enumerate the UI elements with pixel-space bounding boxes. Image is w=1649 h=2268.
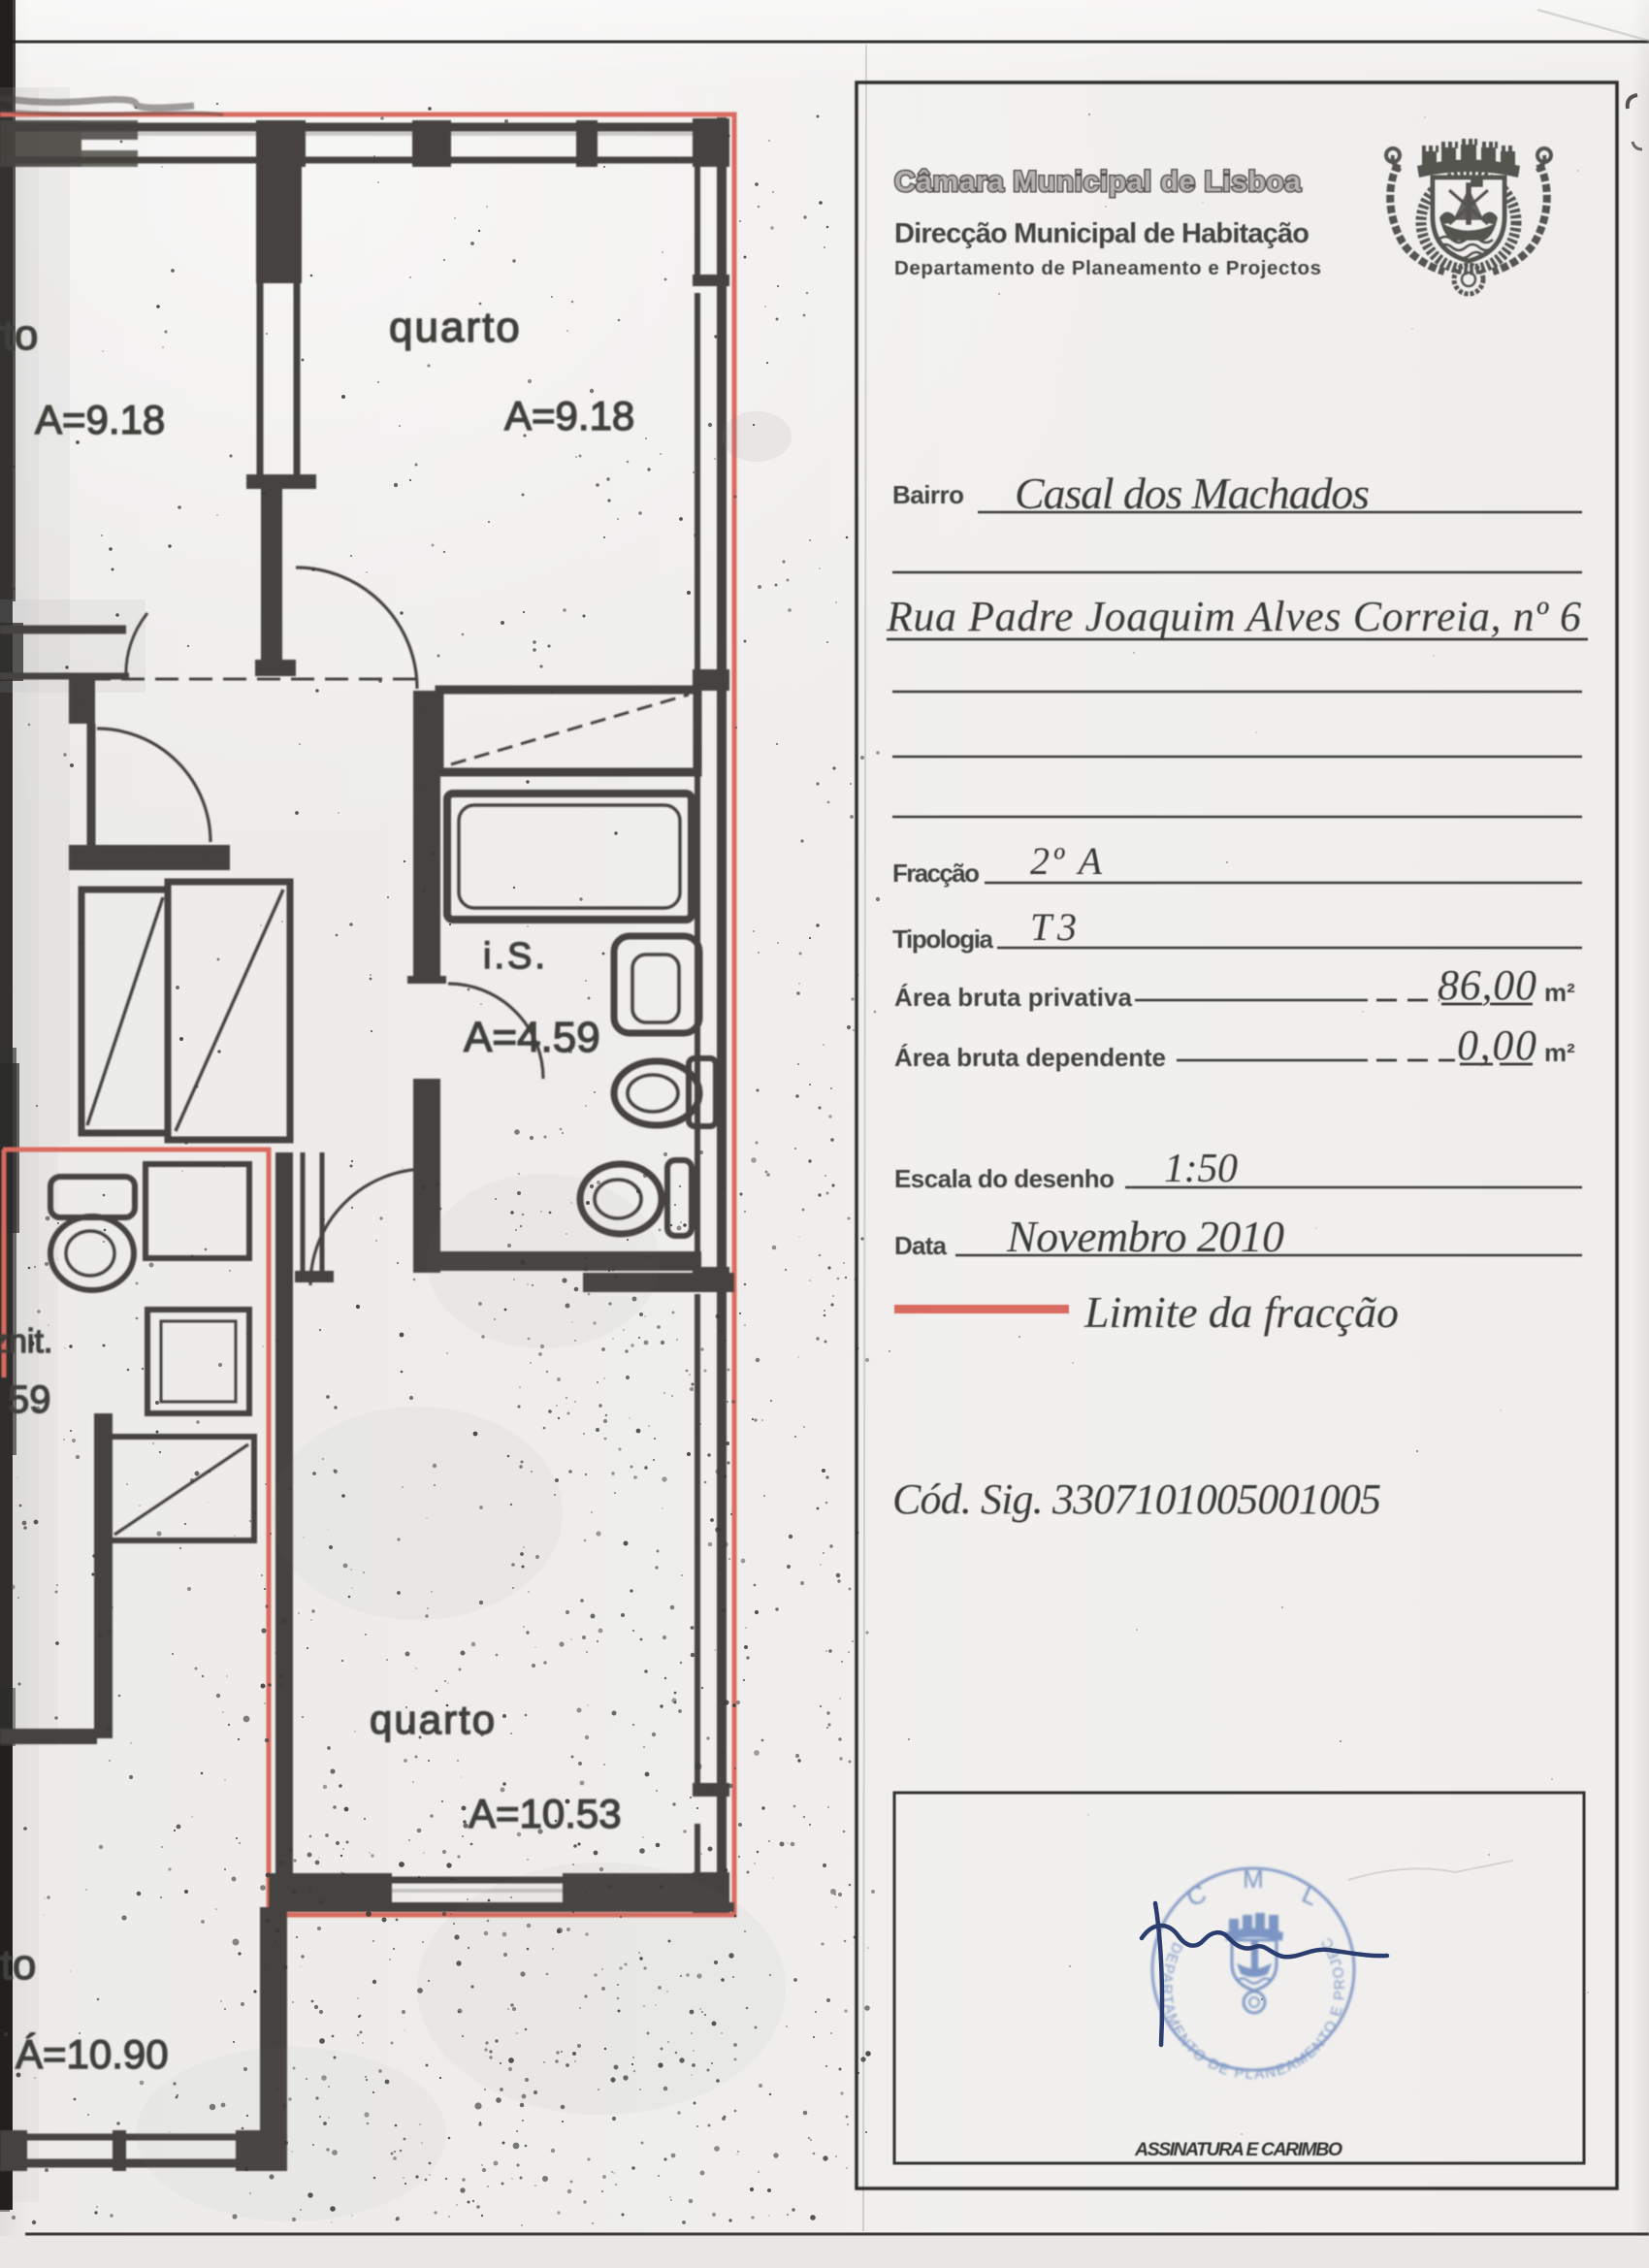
svg-text:Casal dos Machados: Casal dos Machados xyxy=(1015,469,1370,518)
svg-text:quarto: quarto xyxy=(389,304,522,351)
svg-text:m²: m² xyxy=(1544,978,1575,1007)
svg-text:Data: Data xyxy=(894,1231,948,1260)
svg-text:Direcção Municipal de Habitaçã: Direcção Municipal de Habitação xyxy=(894,218,1309,249)
svg-text:Rua Padre Joaquim Alves Correi: Rua Padre Joaquim Alves Correia, nº 6 xyxy=(886,593,1581,640)
svg-text:Câmara Municipal de Lisboa: Câmara Municipal de Lisboa xyxy=(894,166,1302,198)
svg-text:1:50: 1:50 xyxy=(1164,1147,1238,1191)
svg-text:Bairro: Bairro xyxy=(892,480,964,509)
svg-text:Departamento de Planeamento e: Departamento de Planeamento e Projectos xyxy=(894,257,1321,279)
svg-text:A=9.18: A=9.18 xyxy=(35,397,165,442)
svg-text:Área bruta dependente: Área bruta dependente xyxy=(894,1043,1166,1072)
svg-text:Fracção: Fracção xyxy=(892,859,980,888)
svg-text:Tipologia: Tipologia xyxy=(892,924,994,954)
svg-text:L: L xyxy=(1298,1879,1322,1911)
svg-text:m²: m² xyxy=(1544,1038,1575,1067)
svg-text:Escala do desenho: Escala do desenho xyxy=(894,1164,1115,1193)
svg-text:Cód. Sig. 3307101005001005: Cód. Sig. 3307101005001005 xyxy=(892,1475,1381,1523)
svg-text:M: M xyxy=(1243,1864,1264,1894)
svg-text:Á=10.90: Á=10.90 xyxy=(16,2031,169,2077)
svg-text:59: 59 xyxy=(8,1378,51,1421)
svg-text:DEPARTAMENTO DE PLANEAMENTO E: DEPARTAMENTO DE PLANEAMENTO E PROJECTOS xyxy=(0,0,1348,2083)
svg-text:86,00: 86,00 xyxy=(1438,961,1536,1009)
svg-text:2º A: 2º A xyxy=(1030,839,1103,883)
svg-text:znit.: znit. xyxy=(0,1323,52,1360)
svg-text:i.S.: i.S. xyxy=(483,936,548,977)
svg-text:C: C xyxy=(1182,1878,1211,1912)
svg-text:T3: T3 xyxy=(1030,905,1077,949)
svg-text:rto: rto xyxy=(0,311,38,359)
svg-text:A=4.59: A=4.59 xyxy=(464,1014,600,1061)
svg-text:0,00: 0,00 xyxy=(1457,1021,1536,1069)
svg-text:Limite da fracção: Limite da fracção xyxy=(1083,1287,1399,1337)
svg-text:A=9.18: A=9.18 xyxy=(504,393,634,438)
svg-text:A=10.53: A=10.53 xyxy=(469,1791,622,1836)
svg-text:quarto: quarto xyxy=(370,1697,497,1742)
svg-text:ASSINATURA E CARIMBO: ASSINATURA E CARIMBO xyxy=(1134,2139,1342,2160)
svg-text:Novembro 2010: Novembro 2010 xyxy=(1006,1212,1284,1261)
svg-text:rto: rto xyxy=(0,1941,36,1989)
svg-text:Área bruta privativa: Área bruta privativa xyxy=(894,983,1133,1012)
